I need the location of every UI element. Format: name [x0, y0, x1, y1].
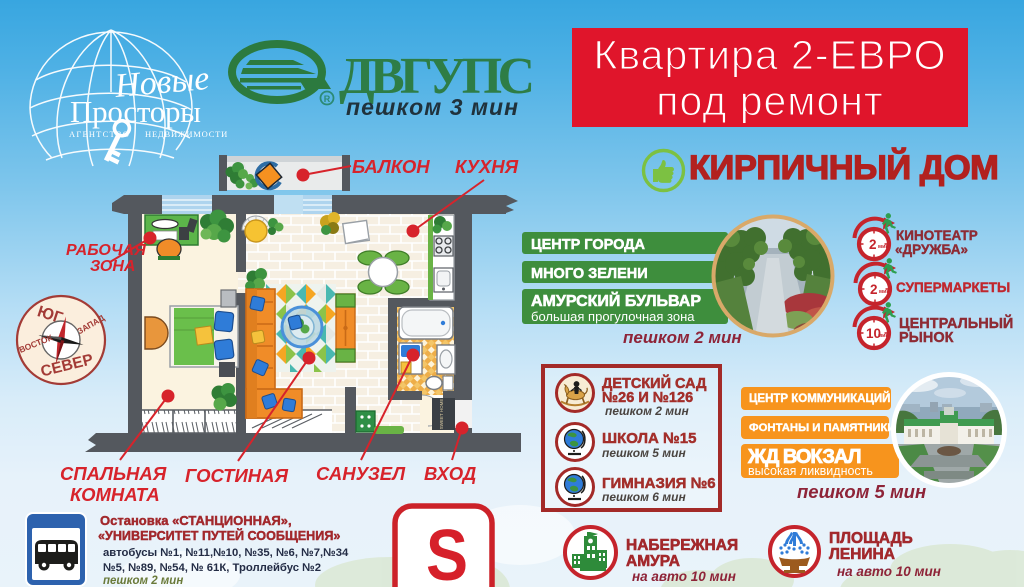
svg-text:SWEET HOME: SWEET HOME	[439, 399, 444, 430]
svg-text:ЗОНА: ЗОНА	[90, 258, 135, 275]
svg-text:Просторы: Просторы	[70, 94, 201, 129]
svg-text:S: S	[426, 516, 468, 587]
svg-text:ВХОД: ВХОД	[424, 463, 476, 484]
svg-text:ГОСТИНАЯ: ГОСТИНАЯ	[185, 465, 288, 486]
svg-text:САНУЗЕЛ: САНУЗЕЛ	[316, 463, 406, 484]
svg-text:мин: мин	[878, 244, 889, 250]
svg-text:НЕДВИЖИМОСТИ: НЕДВИЖИМОСТИ	[145, 129, 228, 139]
svg-text:КОМНАТА: КОМНАТА	[70, 484, 160, 505]
svg-text:2: 2	[870, 282, 878, 297]
svg-text:мин: мин	[879, 289, 890, 295]
svg-text:R: R	[324, 94, 331, 104]
svg-text:КУХНЯ: КУХНЯ	[455, 156, 519, 177]
svg-text:СПАЛЬНАЯ: СПАЛЬНАЯ	[60, 463, 167, 484]
svg-text:БАЛКОН: БАЛКОН	[352, 156, 430, 177]
svg-text:мин: мин	[878, 333, 889, 339]
svg-text:2: 2	[869, 237, 877, 252]
svg-text:РАБОЧАЯ: РАБОЧАЯ	[66, 242, 146, 259]
svg-text:пешком 3 мин: пешком 3 мин	[346, 94, 518, 120]
